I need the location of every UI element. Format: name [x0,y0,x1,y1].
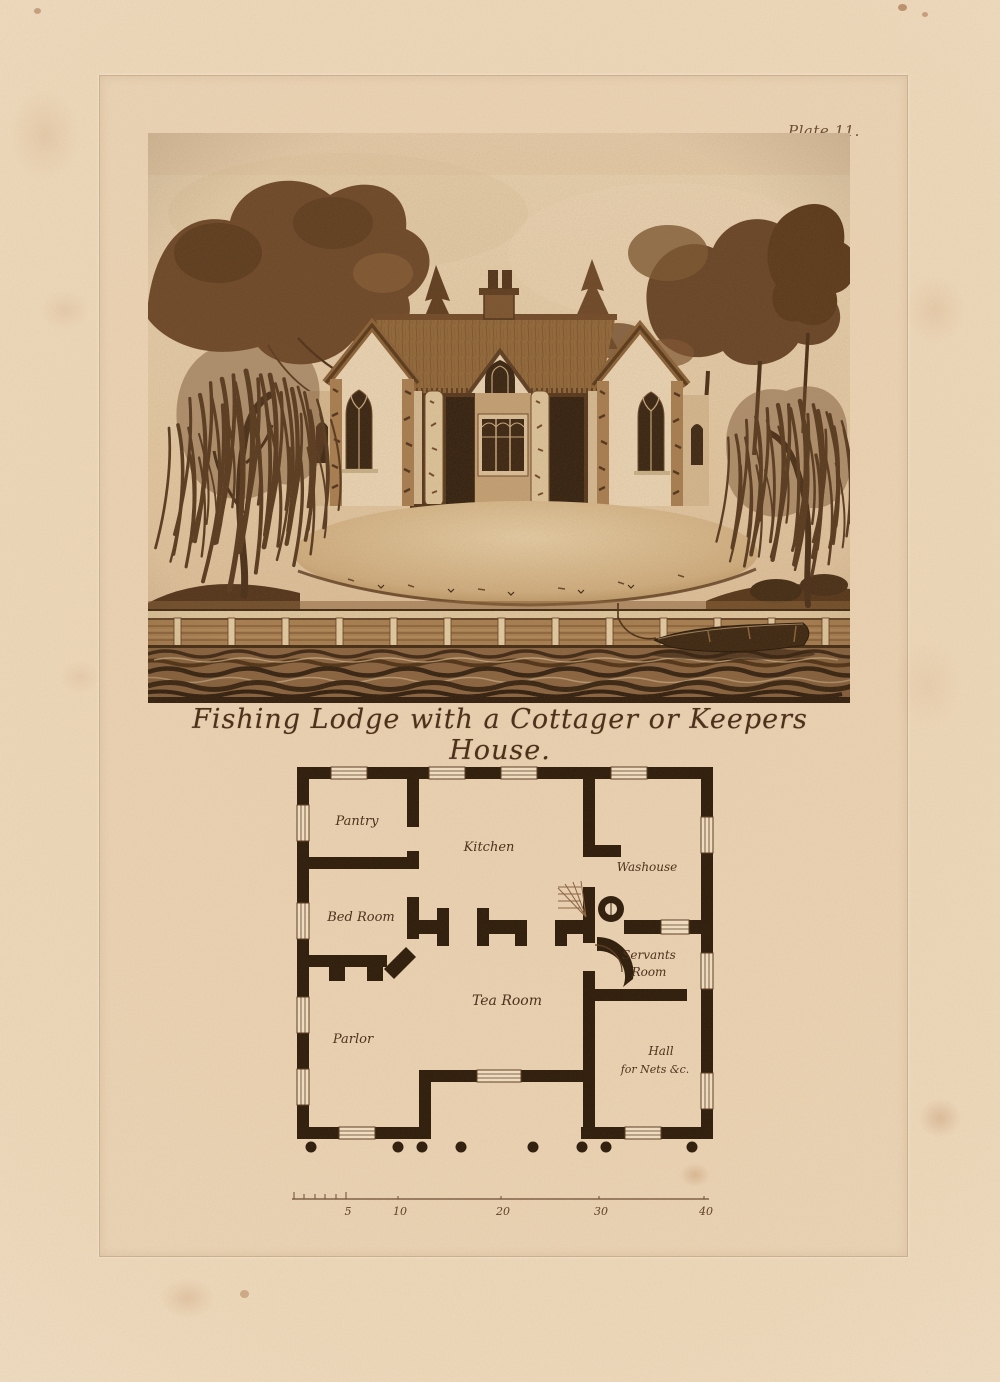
scale-bar: 5 10 20 30 40 [285,1188,725,1224]
room-label-servants-2: Room [631,965,667,979]
room-label-servants-1: Servants [622,948,676,962]
scale-tick-20: 20 [495,1205,510,1218]
scale-tick-10: 10 [393,1205,407,1218]
scale-tick-30: 30 [594,1205,608,1218]
room-label-kitchen: Kitchen [463,840,515,855]
room-label-bed-room: Bed Room [326,910,394,925]
scene-illustration [148,133,850,703]
floor-plan: Pantry Kitchen Washouse Bed Room Servant… [281,757,721,1157]
room-label-hall-2: for Nets &c. [620,1063,690,1076]
room-label-pantry: Pantry [334,814,379,829]
scale-tick-5: 5 [345,1205,352,1218]
scale-tick-40: 40 [698,1205,713,1218]
room-label-parlor: Parlor [332,1032,374,1047]
room-label-tea-room: Tea Room [472,993,542,1009]
room-label-hall-1: Hall [647,1044,673,1058]
veranda-column-dots [306,1142,698,1153]
print-page: Plate 11. [0,0,1000,1382]
stair [558,881,586,917]
room-label-washouse: Washouse [617,860,678,874]
